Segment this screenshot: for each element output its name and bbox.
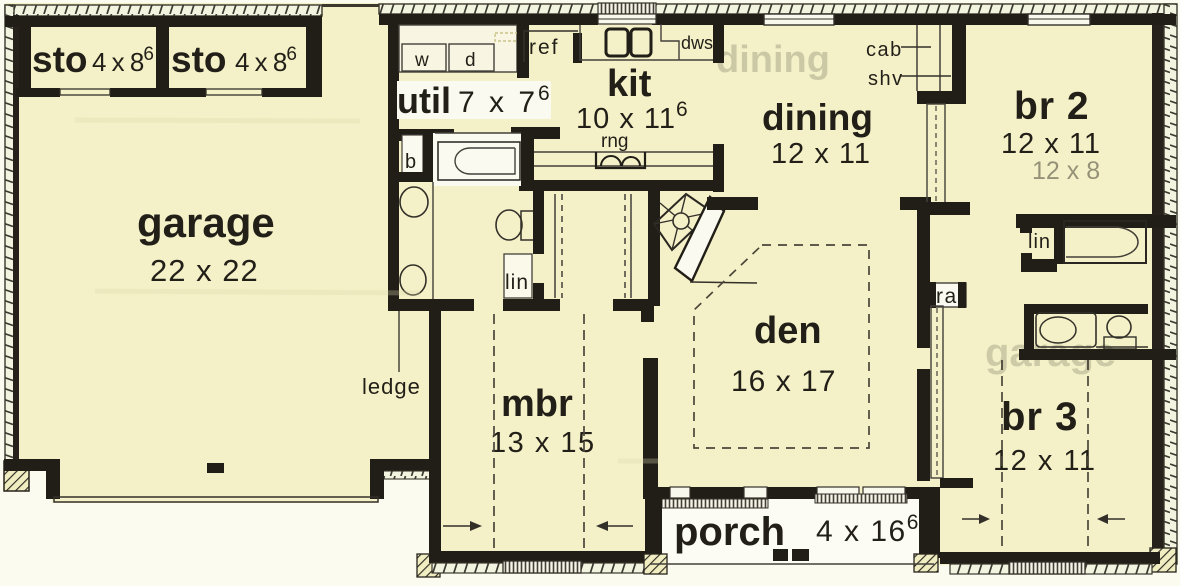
svg-text:ref: ref	[529, 36, 560, 59]
svg-text:12 x 8: 12 x 8	[1032, 157, 1100, 185]
svg-text:cab: cab	[866, 39, 903, 61]
svg-text:4 x 166: 4 x 166	[816, 511, 920, 548]
svg-text:shv: shv	[868, 68, 904, 90]
svg-text:kit: kit	[607, 63, 652, 105]
svg-text:lin: lin	[1028, 231, 1051, 253]
svg-text:16 x 17: 16 x 17	[731, 365, 836, 398]
svg-text:dining: dining	[716, 39, 830, 81]
svg-text:d: d	[465, 50, 476, 71]
svg-text:b: b	[405, 151, 416, 173]
svg-text:w: w	[414, 50, 429, 71]
svg-text:dining: dining	[762, 97, 873, 138]
svg-text:13 x 15: 13 x 15	[490, 427, 596, 459]
svg-text:den: den	[754, 310, 822, 352]
svg-text:sto: sto	[32, 39, 88, 80]
svg-text:br 2: br 2	[1014, 85, 1090, 128]
svg-text:22 x 22: 22 x 22	[150, 253, 259, 288]
svg-text:12 x 11: 12 x 11	[1001, 128, 1101, 160]
svg-text:br 3: br 3	[1001, 395, 1078, 439]
svg-text:lin: lin	[505, 271, 529, 294]
svg-text:sto: sto	[171, 39, 227, 80]
svg-text:rng: rng	[601, 131, 628, 152]
svg-text:dws: dws	[681, 33, 713, 53]
svg-text:garage: garage	[137, 199, 275, 246]
svg-text:garage: garage	[985, 331, 1116, 375]
svg-text:util: util	[397, 80, 451, 121]
svg-text:12 x 11: 12 x 11	[771, 138, 871, 170]
svg-text:ledge: ledge	[362, 374, 421, 399]
svg-text:10 x 116: 10 x 116	[576, 98, 689, 135]
svg-text:12 x 11: 12 x 11	[993, 445, 1096, 477]
svg-text:ra: ra	[936, 285, 958, 308]
svg-text:porch: porch	[674, 510, 785, 554]
svg-text:mbr: mbr	[501, 383, 573, 425]
